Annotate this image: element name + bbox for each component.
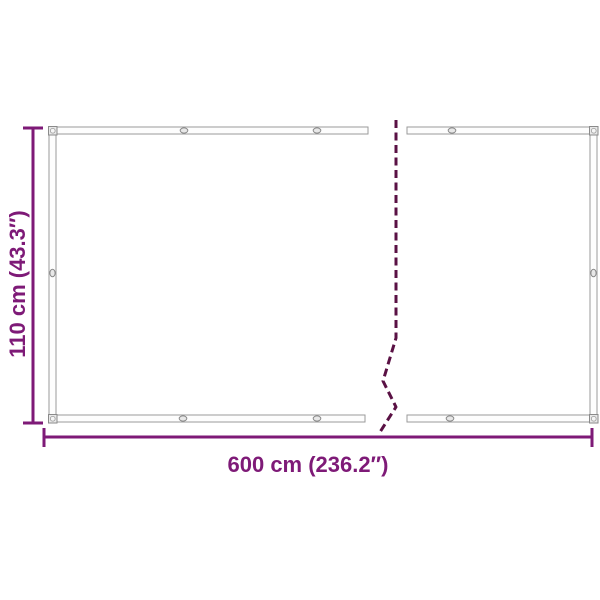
corner-grommets bbox=[49, 127, 599, 424]
grommet-icon bbox=[50, 269, 55, 277]
grommet-icon bbox=[179, 416, 187, 421]
frame-top-bar-right bbox=[407, 127, 597, 134]
diagram-svg: 110 cm (43.3″) 600 cm (236.2″) bbox=[0, 0, 600, 600]
dimension-diagram: 110 cm (43.3″) 600 cm (236.2″) bbox=[0, 0, 600, 600]
grommet-icon bbox=[448, 128, 456, 133]
screen-frame-right-section bbox=[407, 127, 597, 422]
width-dimension-label: 600 cm (236.2″) bbox=[228, 452, 389, 477]
width-dimension-line bbox=[44, 428, 592, 447]
grommet-icon bbox=[49, 127, 58, 136]
edge-grommets bbox=[50, 128, 596, 421]
break-line bbox=[380, 120, 396, 432]
grommet-icon bbox=[590, 415, 599, 424]
frame-bottom-bar-right bbox=[407, 415, 597, 422]
grommet-icon bbox=[591, 269, 596, 277]
grommet-icon bbox=[313, 128, 321, 133]
grommet-icon bbox=[180, 128, 188, 133]
height-dimension-label: 110 cm (43.3″) bbox=[5, 210, 30, 358]
grommet-icon bbox=[313, 416, 321, 421]
grommet-icon bbox=[49, 415, 58, 424]
grommet-icon bbox=[446, 416, 454, 421]
grommet-icon bbox=[590, 127, 599, 136]
screen-frame-left-section bbox=[49, 127, 368, 422]
